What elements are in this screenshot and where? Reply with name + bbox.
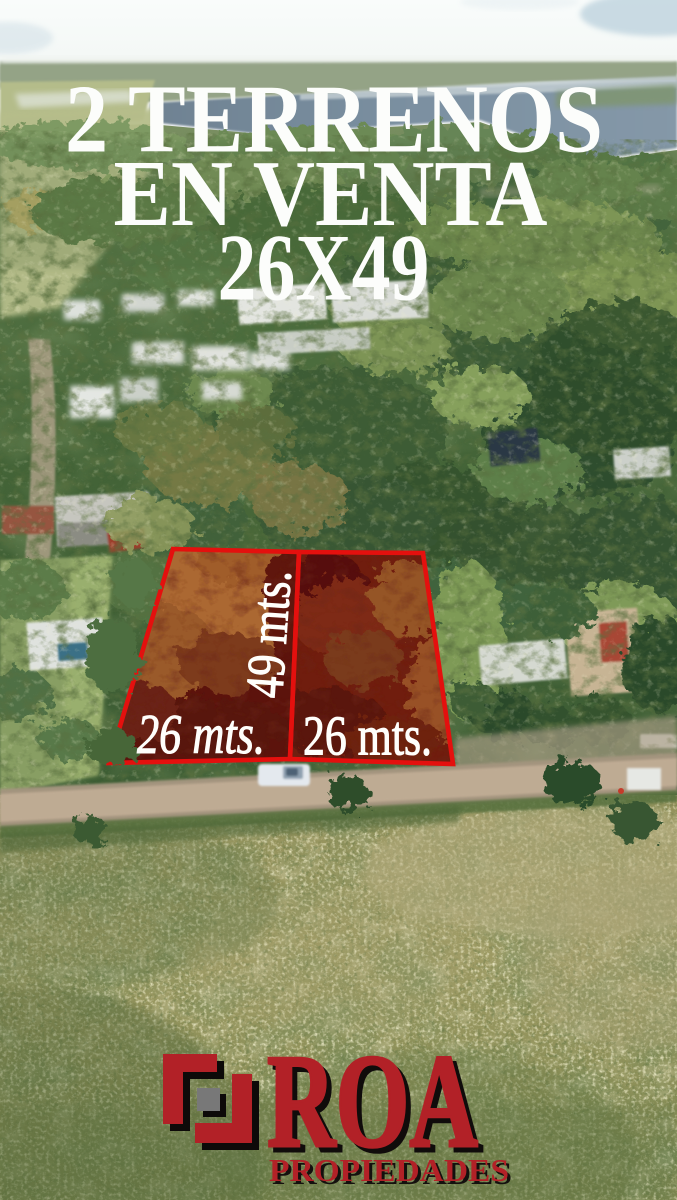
svg-text:49 mts.: 49 mts. xyxy=(234,568,303,700)
svg-text:PROPIEDADES: PROPIEDADES xyxy=(269,1152,509,1188)
svg-text:26 mts.: 26 mts. xyxy=(303,706,432,768)
svg-text:26 mts.: 26 mts. xyxy=(137,704,265,766)
svg-text:26X49: 26X49 xyxy=(218,215,430,321)
